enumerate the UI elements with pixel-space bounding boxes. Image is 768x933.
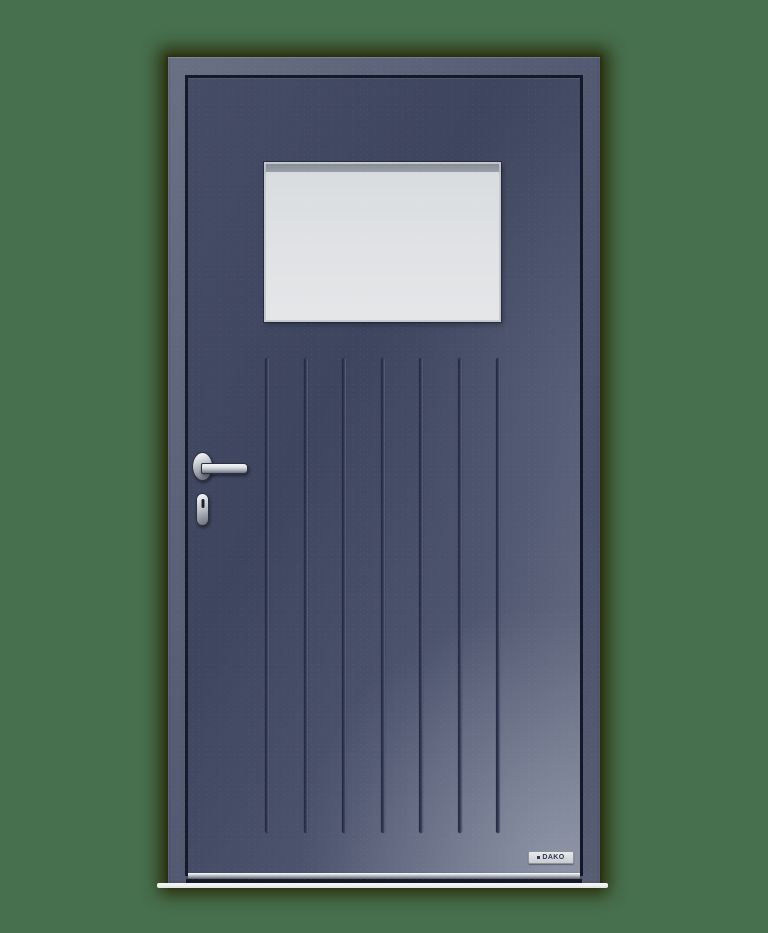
brand-logo-icon <box>537 856 540 859</box>
groove <box>304 358 308 833</box>
product-image-background: DAKO <box>0 0 768 933</box>
keyhole-icon <box>201 499 204 508</box>
groove <box>419 358 423 833</box>
door-leaf: DAKO <box>188 78 580 873</box>
groove <box>458 358 462 833</box>
groove <box>265 358 269 833</box>
window-glass <box>266 172 499 320</box>
floor-line <box>157 883 608 888</box>
glazing-bead <box>266 164 499 172</box>
lock-cylinder-escutcheon <box>196 493 209 526</box>
groove <box>381 358 385 833</box>
brand-plate: DAKO <box>528 851 574 864</box>
groove <box>496 358 500 833</box>
groove <box>342 358 346 833</box>
groove-panel <box>188 358 580 833</box>
brand-label: DAKO <box>542 854 564 861</box>
window-glazing <box>264 162 501 322</box>
door-frame: DAKO <box>168 57 600 886</box>
door-handle-lever <box>201 463 248 474</box>
